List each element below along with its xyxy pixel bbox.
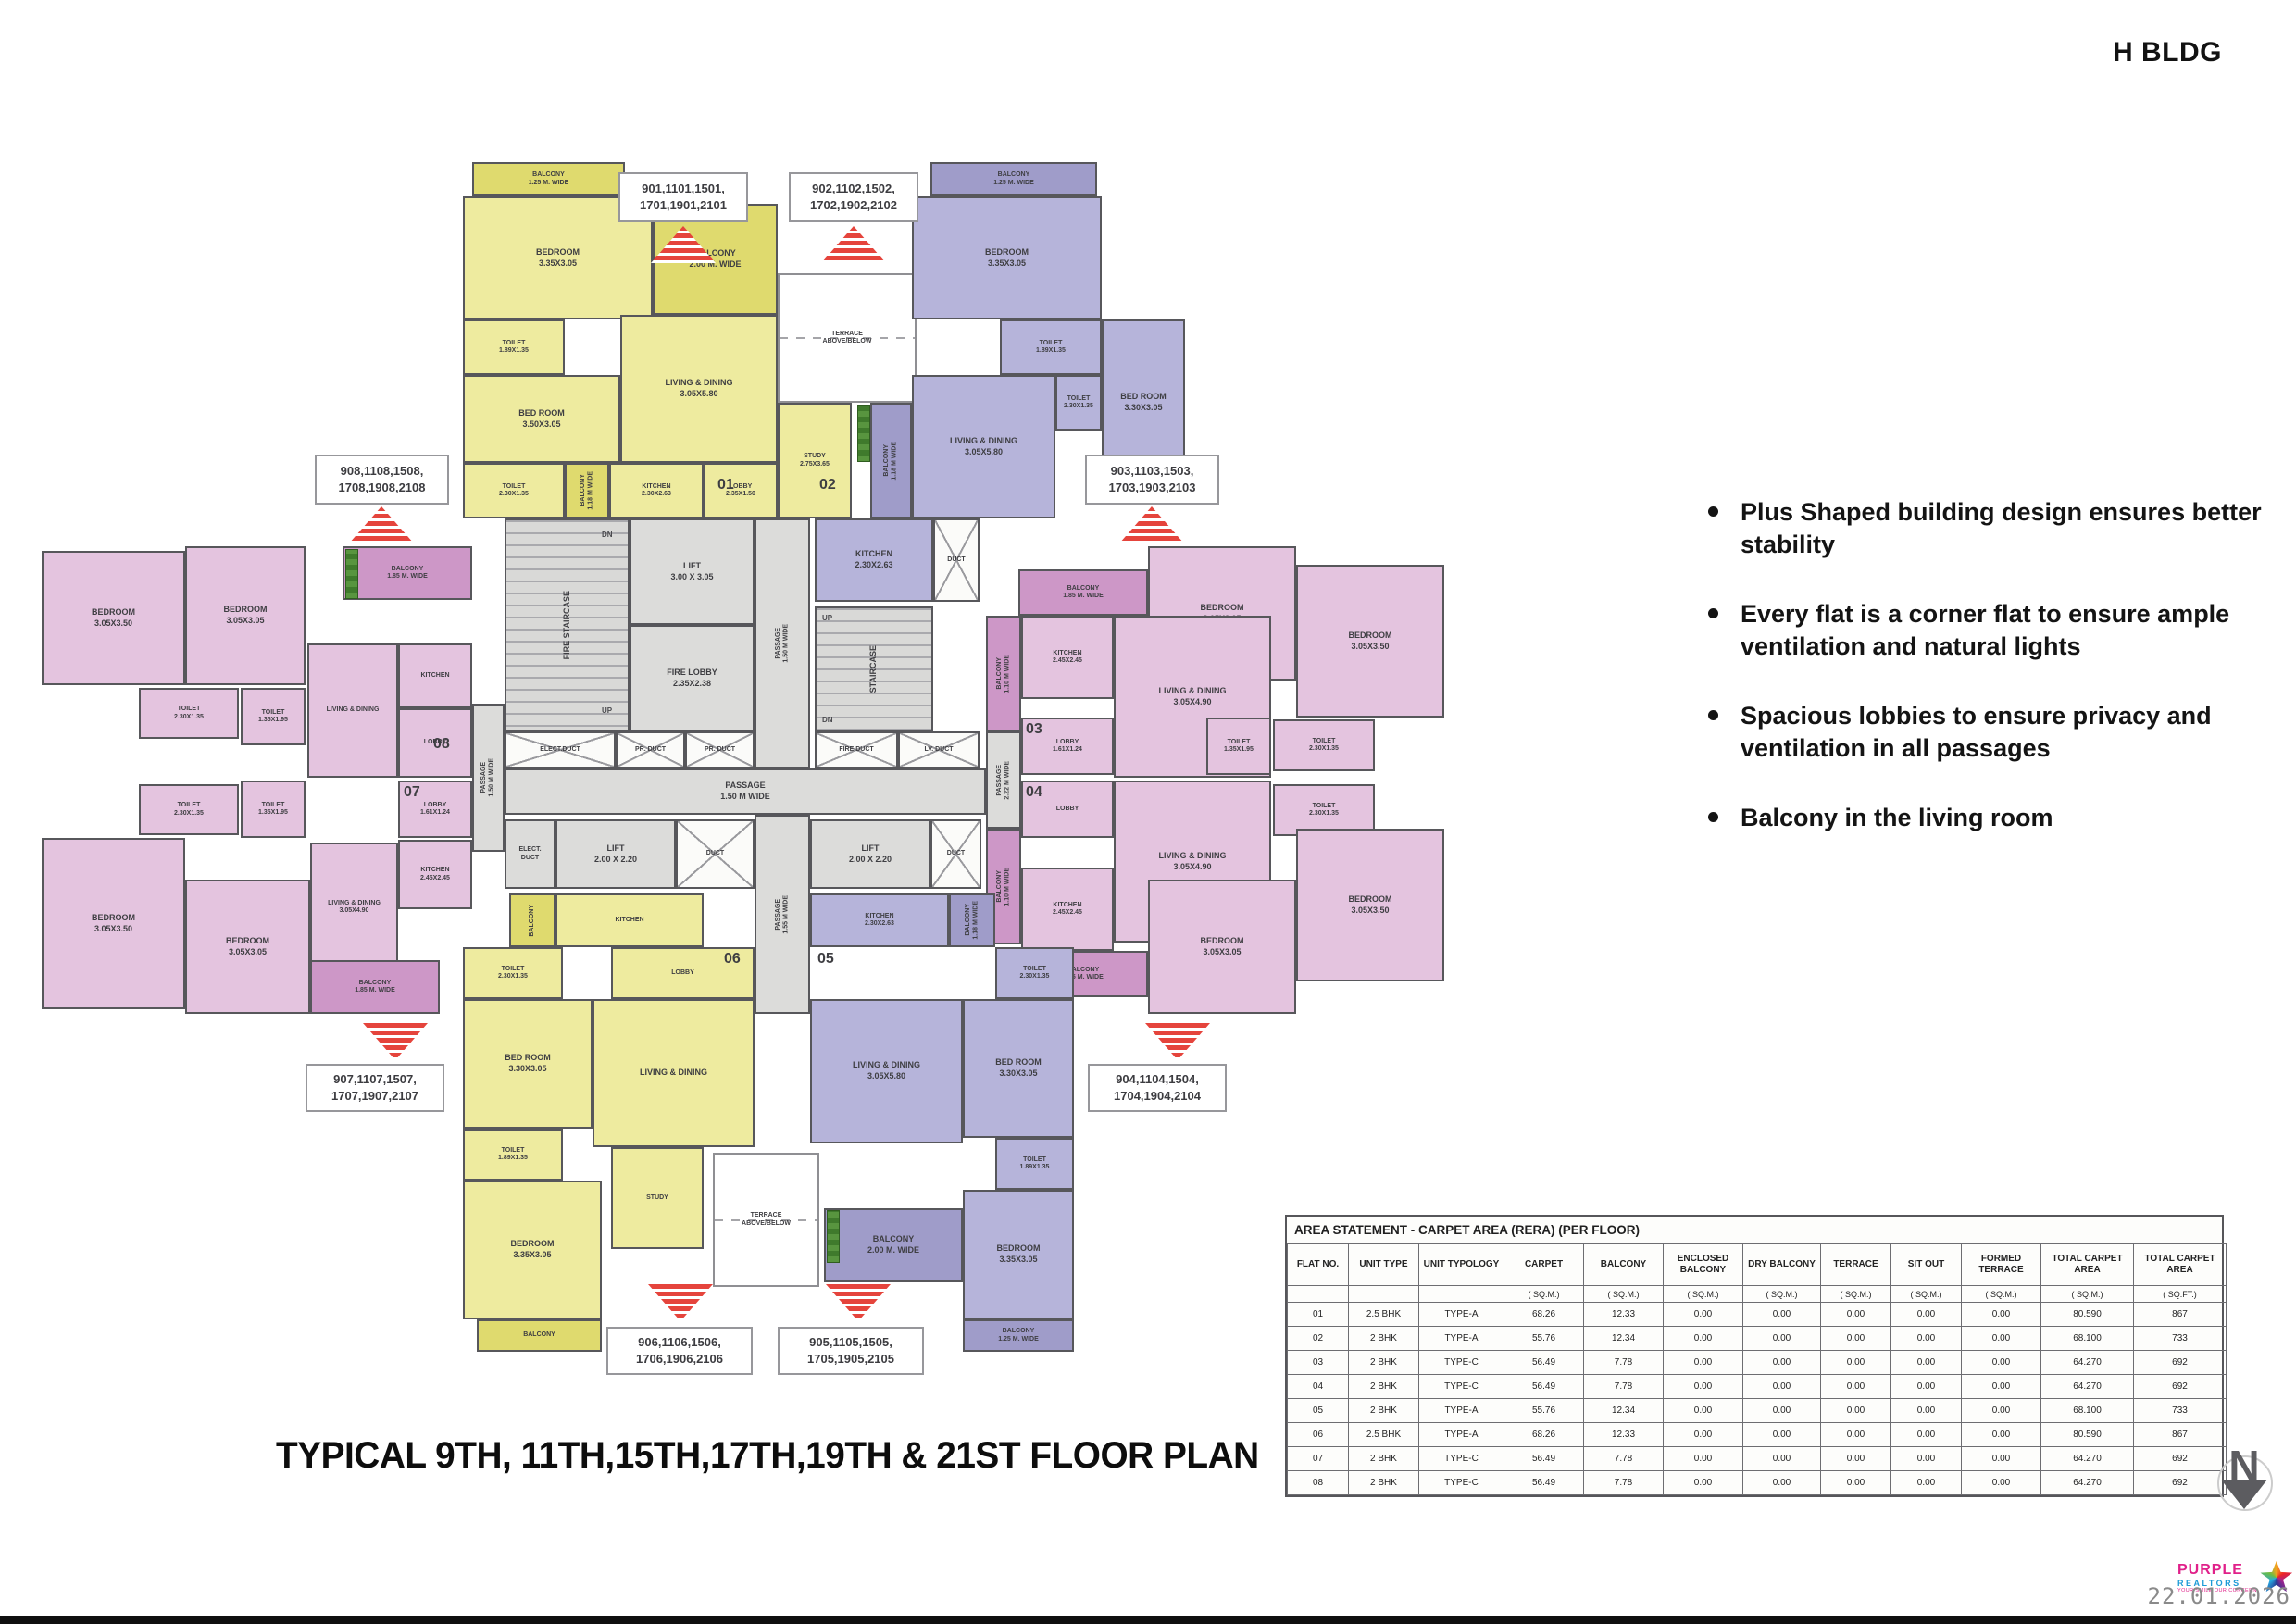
f8-toilet-1: TOILET 2.30X1.35: [139, 688, 239, 739]
plant-icon: [345, 549, 358, 599]
cell: TYPE-A: [1419, 1303, 1504, 1327]
cell: 0.00: [1962, 1399, 2041, 1423]
cell: 05: [1288, 1399, 1349, 1423]
cell: 0.00: [1743, 1375, 1821, 1399]
table-row: 012.5 BHKTYPE-A68.2612.330.000.000.000.0…: [1288, 1303, 2227, 1327]
cell: 692: [2134, 1375, 2227, 1399]
cell: 0.00: [1891, 1423, 1962, 1447]
f1-toilet-2: TOILET 2.30X1.35: [463, 463, 565, 518]
unit-marker-icon: [1145, 1023, 1210, 1060]
cell: 2 BHK: [1349, 1351, 1419, 1375]
cell: TYPE-C: [1419, 1351, 1504, 1375]
table-row: 032 BHKTYPE-C56.497.780.000.000.000.000.…: [1288, 1351, 2227, 1375]
cell: 80.590: [2041, 1423, 2134, 1447]
cell: 0.00: [1664, 1399, 1743, 1423]
unit-callout-902: 902,1102,1502, 1702,1902,2102: [789, 172, 918, 222]
f1-kitchen: KITCHEN 2.30X2.63: [609, 463, 704, 518]
cell: 7.78: [1584, 1351, 1664, 1375]
unit-cell: ( SQ.M.): [2041, 1286, 2134, 1303]
unit-cell: ( SQ.M.): [1743, 1286, 1821, 1303]
f2-living-dining: LIVING & DINING 3.05X5.80: [912, 375, 1055, 518]
f5-balcony: BALCONY 1.25 M. WIDE: [963, 1319, 1074, 1352]
cell: 68.26: [1504, 1303, 1584, 1327]
cell: 692: [2134, 1471, 2227, 1495]
f1-lobby: LOBBY 2.35X1.50: [704, 463, 778, 518]
f7-toilet-1: TOILET 2.30X1.35: [139, 784, 239, 835]
cell: 0.00: [1962, 1375, 2041, 1399]
cell: 0.00: [1891, 1327, 1962, 1351]
lift: LIFT 2.00 X 2.20: [555, 819, 676, 889]
f8-bedroom-1: BEDROOM 3.05X3.50: [42, 551, 185, 685]
unit-callout-904: 904,1104,1504, 1704,1904,2104: [1088, 1064, 1227, 1112]
cell: 0.00: [1821, 1399, 1891, 1423]
cell: 733: [2134, 1327, 2227, 1351]
cell: 2.5 BHK: [1349, 1303, 1419, 1327]
duct: DUCT: [933, 518, 980, 602]
cell: 867: [2134, 1423, 2227, 1447]
table-header-row: FLAT NO.UNIT TYPEUNIT TYPOLOGYCARPETBALC…: [1288, 1244, 2227, 1286]
cell: 0.00: [1891, 1375, 1962, 1399]
col-header: BALCONY: [1584, 1244, 1664, 1286]
f2-bedroom-1: BEDROOM 3.35X3.05: [912, 196, 1102, 319]
floor-plan-page: H BLDG FIRE STAIRCASE DN UP LIFT 3.00 X …: [0, 0, 2296, 1624]
table-row: 052 BHKTYPE-A55.7612.340.000.000.000.000…: [1288, 1399, 2227, 1423]
cell: 12.33: [1584, 1303, 1664, 1327]
f7-toilet-2: TOILET 1.35X1.95: [241, 781, 306, 838]
cell: 12.34: [1584, 1327, 1664, 1351]
cell: 0.00: [1962, 1351, 2041, 1375]
north-arrow: N: [2215, 1444, 2274, 1515]
cell: 0.00: [1821, 1471, 1891, 1495]
unit-callout-901: 901,1101,1501, 1701,1901,2101: [618, 172, 748, 222]
elect-duct: ELECT.DUCT: [505, 731, 616, 768]
flat-number-07: 07: [404, 784, 420, 801]
cell: 0.00: [1664, 1447, 1743, 1471]
col-header: DRY BALCONY: [1743, 1244, 1821, 1286]
f3-bedroom-2: BEDROOM 3.05X3.50: [1296, 565, 1444, 718]
unit-callout-906: 906,1106,1506, 1706,1906,2106: [606, 1327, 753, 1375]
f5-living-dining: LIVING & DINING 3.05X5.80: [810, 999, 963, 1143]
f5-toilet-2: TOILET 1.89X1.35: [995, 1138, 1074, 1190]
cell: 0.00: [1821, 1423, 1891, 1447]
unit-callout-908: 908,1108,1508, 1708,1908,2108: [315, 455, 449, 505]
table-row: 062.5 BHKTYPE-A68.2612.330.000.000.000.0…: [1288, 1423, 2227, 1447]
stair-dn-label: DN: [822, 716, 833, 724]
f2-kitchen: KITCHEN 2.30X2.63: [815, 518, 933, 602]
f7-balcony: BALCONY 1.85 M. WIDE: [310, 960, 440, 1014]
fire-lobby: FIRE LOBBY 2.35X2.38: [630, 625, 755, 731]
f6-kitchen: KITCHEN: [555, 893, 704, 947]
unit-cell: ( SQ.M.): [1504, 1286, 1584, 1303]
cell: TYPE-C: [1419, 1471, 1504, 1495]
cell: 0.00: [1962, 1471, 2041, 1495]
f5-bedroom-2: BEDROOM 3.35X3.05: [963, 1190, 1074, 1319]
unit-marker-icon: [826, 1284, 891, 1321]
col-header: CARPET: [1504, 1244, 1584, 1286]
plant-icon: [827, 1210, 840, 1263]
duct: DUCT: [676, 819, 755, 889]
table-row: 072 BHKTYPE-C56.497.780.000.000.000.000.…: [1288, 1447, 2227, 1471]
cell: TYPE-A: [1419, 1327, 1504, 1351]
f3-toilet-1: TOILET 2.30X1.35: [1273, 719, 1375, 771]
unit-cell: ( SQ.M.): [1891, 1286, 1962, 1303]
cell: 733: [2134, 1399, 2227, 1423]
f6-toilet-1: TOILET 2.30X1.35: [463, 947, 563, 999]
flat-number-01: 01: [717, 477, 734, 493]
cell: 56.49: [1504, 1375, 1584, 1399]
f6-balcony-small: BALCONY: [509, 893, 555, 947]
cell: 0.00: [1891, 1471, 1962, 1495]
table-row: 082 BHKTYPE-C56.497.780.000.000.000.000.…: [1288, 1471, 2227, 1495]
flat-number-05: 05: [817, 951, 834, 968]
f8-balcony: BALCONY 1.85 M. WIDE: [343, 546, 472, 600]
col-header: ENCLOSED BALCONY: [1664, 1244, 1743, 1286]
flat-number-03: 03: [1026, 721, 1042, 738]
cell: 692: [2134, 1351, 2227, 1375]
fire-staircase: FIRE STAIRCASE: [505, 518, 630, 731]
page-title: TYPICAL 9TH, 11TH,15TH,17TH,19TH & 21ST …: [276, 1435, 1259, 1477]
cell: 0.00: [1821, 1351, 1891, 1375]
cell: 68.100: [2041, 1399, 2134, 1423]
f6-study: STUDY: [611, 1147, 704, 1249]
flat-number-06: 06: [724, 951, 741, 968]
col-header: FLAT NO.: [1288, 1244, 1349, 1286]
table-units-row: ( SQ.M.)( SQ.M.)( SQ.M.)( SQ.M.)( SQ.M.)…: [1288, 1286, 2227, 1303]
f1-toilet-1: TOILET 1.89X1.35: [463, 319, 565, 375]
col-header: FORMED TERRACE: [1962, 1244, 2041, 1286]
lv-duct: LV. DUCT: [898, 731, 980, 768]
feature-text: Spacious lobbies to ensure privacy and v…: [1741, 700, 2264, 764]
cell: 68.100: [2041, 1327, 2134, 1351]
cell: 0.00: [1962, 1447, 2041, 1471]
cell: 64.270: [2041, 1375, 2134, 1399]
cell: 2 BHK: [1349, 1327, 1419, 1351]
terrace-top: TERRACE ABOVE/BELOW: [778, 273, 917, 403]
plant-icon: [857, 405, 870, 462]
cell: 0.00: [1664, 1471, 1743, 1495]
cell: 0.00: [1664, 1303, 1743, 1327]
col-header: TERRACE: [1821, 1244, 1891, 1286]
f7-bedroom-1: BEDROOM 3.05X3.50: [42, 838, 185, 1009]
cell: 12.33: [1584, 1423, 1664, 1447]
f1-living-dining: LIVING & DINING 3.05X5.80: [620, 315, 778, 463]
f2-balcony-small: BALCONY 1.18 M WIDE: [870, 403, 912, 518]
f5-balcony-small: BALCONY 1.18 M WIDE: [949, 893, 995, 947]
flat-number-08: 08: [433, 736, 450, 753]
date-stamp: 22.01.2026: [2148, 1583, 2291, 1609]
f8-living-dining: LIVING & DINING: [307, 643, 398, 778]
cell: 0.00: [1891, 1447, 1962, 1471]
unit-cell: ( SQ.M.): [1962, 1286, 2041, 1303]
unit-cell: ( SQ.M.): [1584, 1286, 1664, 1303]
cell: 0.00: [1891, 1303, 1962, 1327]
cell: 2.5 BHK: [1349, 1423, 1419, 1447]
unit-cell: [1288, 1286, 1349, 1303]
unit-marker-icon: [363, 1023, 428, 1060]
f3-kitchen: KITCHEN 2.45X2.45: [1021, 616, 1114, 699]
cell: 04: [1288, 1375, 1349, 1399]
cell: 0.00: [1821, 1447, 1891, 1471]
passage-horizontal: PASSAGE 1.50 M WIDE: [505, 768, 986, 815]
bullet-icon: [1708, 506, 1718, 517]
f6-bedroom-1: BED ROOM 3.30X3.05: [463, 999, 593, 1129]
unit-callout-907: 907,1107,1507, 1707,1907,2107: [306, 1064, 444, 1112]
feature-text: Every flat is a corner flat to ensure am…: [1741, 598, 2264, 662]
f1-study: STUDY 2.75X3.65: [778, 403, 852, 518]
cell: 56.49: [1504, 1471, 1584, 1495]
cell: TYPE-A: [1419, 1399, 1504, 1423]
cell: 03: [1288, 1351, 1349, 1375]
cell: 68.26: [1504, 1423, 1584, 1447]
f6-balcony: BALCONY: [477, 1319, 602, 1352]
passage-vertical-bottom: PASSAGE 1.55 M WIDE: [755, 815, 810, 1014]
lift: LIFT 2.00 X 2.20: [810, 819, 930, 889]
f5-bedroom-1: BED ROOM 3.30X3.05: [963, 999, 1074, 1138]
cell: 12.34: [1584, 1399, 1664, 1423]
lift-main: LIFT 3.00 X 3.05: [630, 518, 755, 625]
cell: 0.00: [1821, 1327, 1891, 1351]
unit-callout-905: 905,1105,1505, 1705,1905,2105: [778, 1327, 924, 1375]
col-header: TOTAL CARPET AREA: [2134, 1244, 2227, 1286]
feature-item: Balcony in the living room: [1708, 802, 2264, 834]
f5-kitchen: KITCHEN 2.30X2.63: [810, 893, 949, 947]
cell: 56.49: [1504, 1447, 1584, 1471]
stair-up-label: UP: [602, 706, 612, 715]
unit-marker-icon: [821, 226, 886, 263]
cell: 0.00: [1821, 1303, 1891, 1327]
cell: 0.00: [1962, 1327, 2041, 1351]
f1-balcony-small: BALCONY 1.18 M WIDE: [565, 463, 609, 518]
cell: 0.00: [1743, 1471, 1821, 1495]
unit-marker-icon: [349, 506, 414, 543]
f1-bedroom-2: BED ROOM 3.50X3.05: [463, 375, 620, 463]
cell: 7.78: [1584, 1447, 1664, 1471]
cell: 55.76: [1504, 1327, 1584, 1351]
cell: 0.00: [1962, 1423, 2041, 1447]
cell: 80.590: [2041, 1303, 2134, 1327]
table-row: 022 BHKTYPE-A55.7612.340.000.000.000.000…: [1288, 1327, 2227, 1351]
terrace-bottom: TERRACE ABOVE/BELOW: [713, 1153, 819, 1287]
cell: 0.00: [1743, 1399, 1821, 1423]
f6-bedroom-2: BEDROOM 3.35X3.05: [463, 1181, 602, 1319]
feature-list: Plus Shaped building design ensures bett…: [1708, 496, 2264, 834]
cell: 0.00: [1743, 1423, 1821, 1447]
stair-up-label: UP: [822, 614, 832, 622]
cell: 0.00: [1962, 1303, 2041, 1327]
pr-duct: PR. DUCT: [685, 731, 755, 768]
unit-cell: [1419, 1286, 1504, 1303]
f6-toilet-2: TOILET 1.89X1.35: [463, 1129, 563, 1181]
f6-living-dining: LIVING & DINING: [593, 999, 755, 1147]
fire-duct: FIRE DUCT: [815, 731, 898, 768]
f8-toilet-2: TOILET 1.35X1.95: [241, 688, 306, 745]
cell: 64.270: [2041, 1471, 2134, 1495]
bullet-icon: [1708, 812, 1718, 822]
unit-cell: ( SQ.M.): [1664, 1286, 1743, 1303]
cell: 64.270: [2041, 1351, 2134, 1375]
unit-callout-903: 903,1103,1503, 1703,1903,2103: [1085, 455, 1219, 505]
elect-duct: ELECT. DUCT: [505, 819, 555, 889]
pr-duct: PR. DUCT: [616, 731, 685, 768]
cell: 07: [1288, 1447, 1349, 1471]
f7-bedroom-2: BEDROOM 3.05X3.05: [185, 880, 310, 1014]
f1-balcony: BALCONY 1.25 M. WIDE: [472, 162, 625, 196]
cell: 0.00: [1743, 1351, 1821, 1375]
cell: 2 BHK: [1349, 1471, 1419, 1495]
bullet-icon: [1708, 710, 1718, 720]
f2-toilet-2: TOILET 2.30X1.35: [1055, 375, 1102, 431]
f4-kitchen: KITCHEN 2.45X2.45: [1021, 868, 1114, 951]
passage-left: PASSAGE 1.50 M WIDE: [472, 704, 505, 852]
cell: 0.00: [1743, 1327, 1821, 1351]
bullet-icon: [1708, 608, 1718, 618]
cell: 7.78: [1584, 1471, 1664, 1495]
table-row: 042 BHKTYPE-C56.497.780.000.000.000.000.…: [1288, 1375, 2227, 1399]
f4-bedroom-2: BEDROOM 3.05X3.50: [1296, 829, 1444, 981]
feature-text: Plus Shaped building design ensures bett…: [1741, 496, 2264, 560]
cell: 0.00: [1664, 1375, 1743, 1399]
col-header: SIT OUT: [1891, 1244, 1962, 1286]
cell: 0.00: [1891, 1351, 1962, 1375]
f8-kitchen: KITCHEN: [398, 643, 472, 708]
unit-cell: ( SQ.FT.): [2134, 1286, 2227, 1303]
f3-balcony-side: BALCONY 1.10 M WIDE: [986, 616, 1021, 731]
f5-balcony-living: BALCONY 2.00 M. WIDE: [824, 1208, 963, 1282]
cell: 0.00: [1743, 1303, 1821, 1327]
floor-plan: FIRE STAIRCASE DN UP LIFT 3.00 X 3.05 FI…: [37, 88, 1454, 1380]
unit-marker-icon: [1119, 506, 1184, 543]
feature-item: Plus Shaped building design ensures bett…: [1708, 496, 2264, 560]
table-title: AREA STATEMENT - CARPET AREA (RERA) (PER…: [1287, 1217, 2222, 1243]
cell: 2 BHK: [1349, 1399, 1419, 1423]
col-header: UNIT TYPOLOGY: [1419, 1244, 1504, 1286]
bottom-border-bar: [0, 1616, 2296, 1624]
building-label: H BLDG: [2113, 37, 2222, 69]
cell: 0.00: [1664, 1423, 1743, 1447]
staircase: STAIRCASE: [815, 606, 933, 731]
f5-toilet-1: TOILET 2.30X1.35: [995, 947, 1074, 999]
cell: 55.76: [1504, 1399, 1584, 1423]
feature-item: Every flat is a corner flat to ensure am…: [1708, 598, 2264, 662]
f2-balcony: BALCONY 1.25 M. WIDE: [930, 162, 1097, 196]
cell: 08: [1288, 1471, 1349, 1495]
col-header: UNIT TYPE: [1349, 1244, 1419, 1286]
stair-dn-label: DN: [602, 531, 613, 539]
f4-bedroom-1: BEDROOM 3.05X3.05: [1148, 880, 1296, 1014]
f8-bedroom-2: BEDROOM 3.05X3.05: [185, 546, 306, 685]
cell: 7.78: [1584, 1375, 1664, 1399]
f3-balcony: BALCONY 1.85 M. WIDE: [1018, 569, 1148, 616]
logo-brand-text: PURPLE: [2177, 1562, 2257, 1579]
cell: 0.00: [1821, 1375, 1891, 1399]
cell: 64.270: [2041, 1447, 2134, 1471]
f7-living-dining: LIVING & DINING 3.05X4.90: [310, 843, 398, 972]
cell: 56.49: [1504, 1351, 1584, 1375]
cell: 0.00: [1664, 1351, 1743, 1375]
unit-cell: [1349, 1286, 1419, 1303]
f7-kitchen: KITCHEN 2.45X2.45: [398, 840, 472, 909]
cell: 0.00: [1891, 1399, 1962, 1423]
unit-marker-icon: [648, 1284, 713, 1321]
area-statement-table: AREA STATEMENT - CARPET AREA (RERA) (PER…: [1285, 1215, 2224, 1497]
duct: DUCT: [930, 819, 981, 889]
cell: 867: [2134, 1303, 2227, 1327]
passage-right: PASSAGE 2.22 M WIDE: [986, 731, 1021, 829]
f3-toilet-2: TOILET 1.35X1.95: [1206, 718, 1271, 775]
f2-toilet-1: TOILET 1.89X1.35: [1000, 319, 1102, 375]
cell: 02: [1288, 1327, 1349, 1351]
feature-item: Spacious lobbies to ensure privacy and v…: [1708, 700, 2264, 764]
cell: 692: [2134, 1447, 2227, 1471]
passage-vertical-top: PASSAGE 1.50 M WIDE: [755, 518, 810, 768]
cell: 2 BHK: [1349, 1375, 1419, 1399]
cell: 2 BHK: [1349, 1447, 1419, 1471]
cell: TYPE-A: [1419, 1423, 1504, 1447]
cell: 0.00: [1664, 1327, 1743, 1351]
feature-text: Balcony in the living room: [1741, 802, 2053, 834]
flat-number-02: 02: [819, 477, 836, 493]
cell: 06: [1288, 1423, 1349, 1447]
col-header: TOTAL CARPET AREA: [2041, 1244, 2134, 1286]
flat-number-04: 04: [1026, 784, 1042, 801]
cell: TYPE-C: [1419, 1447, 1504, 1471]
cell: TYPE-C: [1419, 1375, 1504, 1399]
cell: 01: [1288, 1303, 1349, 1327]
cell: 0.00: [1743, 1447, 1821, 1471]
unit-cell: ( SQ.M.): [1821, 1286, 1891, 1303]
